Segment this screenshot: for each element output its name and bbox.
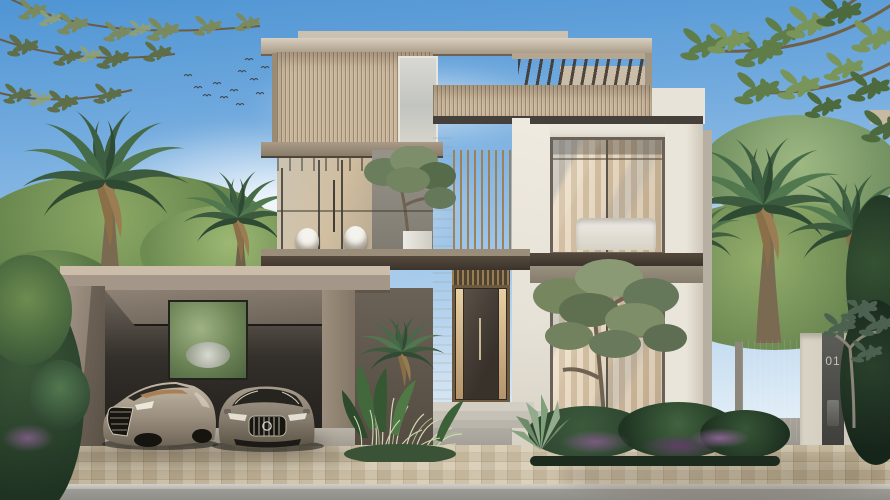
door-handle: [479, 318, 481, 360]
balcony-slab-lip: [261, 249, 530, 256]
stair-window: [398, 56, 438, 148]
parked-cars: [98, 352, 330, 452]
wood-slat-facade-right: [433, 85, 652, 118]
bed-border: [530, 456, 780, 466]
purple-flowers: [2, 424, 54, 452]
door-sidelight: [499, 289, 506, 399]
tree-branches: [655, 0, 890, 160]
tropical-planting: [340, 290, 470, 462]
bed: [576, 218, 656, 250]
olive-branches: [0, 0, 270, 130]
plumeria-plant: [824, 300, 890, 430]
carport-roof: [60, 266, 390, 293]
window-transom: [553, 158, 662, 160]
car-coupe: [102, 382, 218, 450]
villa-exterior-render: 01: [0, 0, 890, 500]
left-bushes: [30, 360, 90, 430]
railing-top: [277, 210, 433, 212]
pergola-beam: [512, 53, 652, 59]
agave-plant: [508, 390, 574, 454]
pergola-slats: [518, 58, 646, 88]
purple-flowers: [690, 428, 750, 448]
car-sedan: [212, 387, 324, 453]
door-transom-grill: [452, 270, 510, 285]
railing-post: [281, 168, 283, 258]
